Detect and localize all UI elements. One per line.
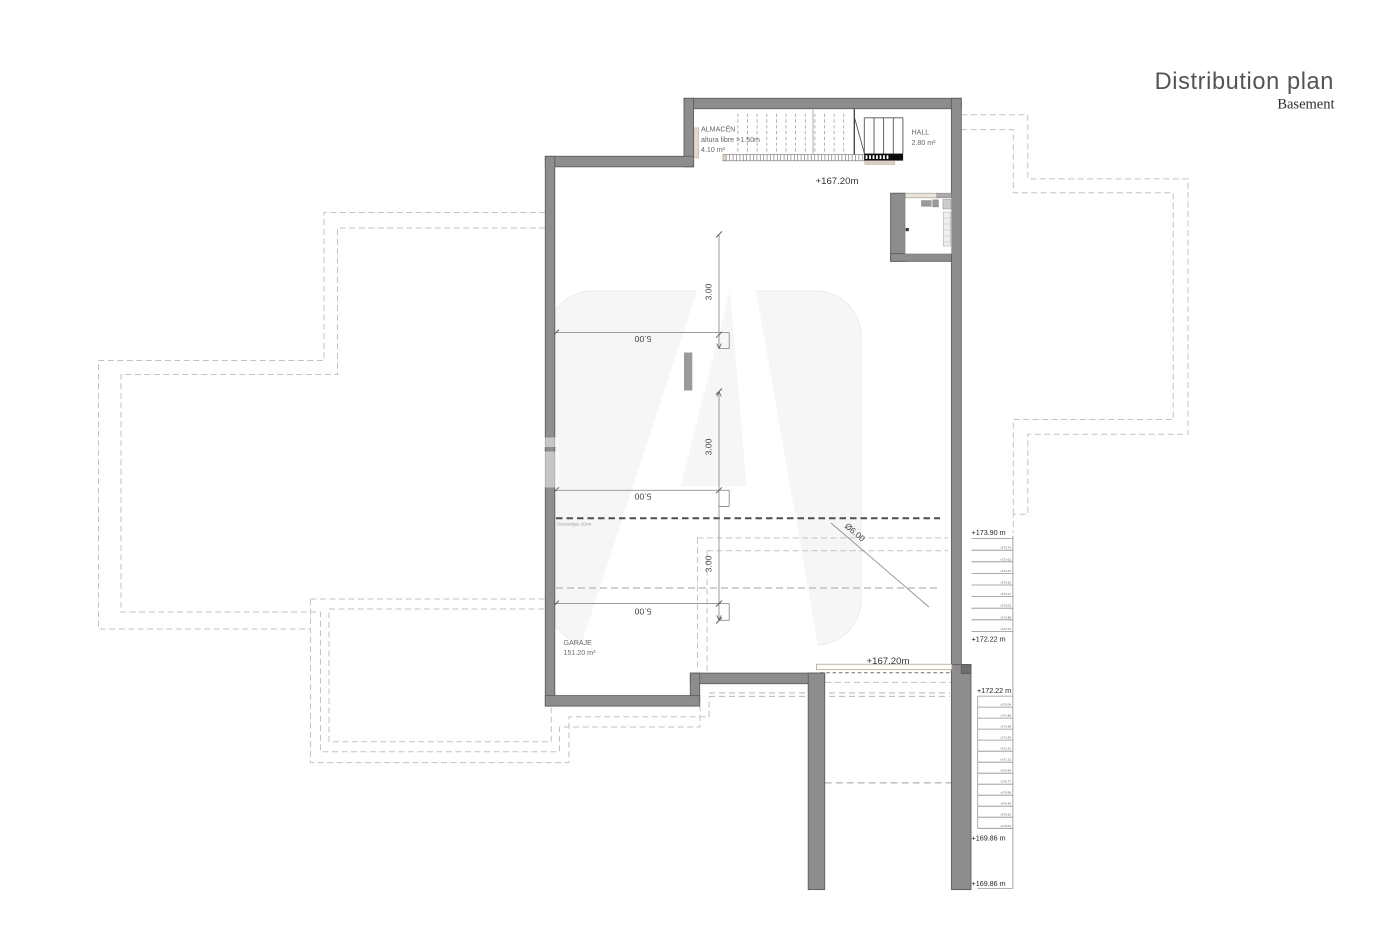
svg-text:+172.04: +172.04 (1000, 703, 1011, 707)
svg-text:5.00: 5.00 (634, 492, 651, 502)
svg-text:+172.88: +172.88 (1000, 615, 1011, 619)
svg-text:+173.32: +173.32 (1000, 581, 1011, 585)
svg-text:+172.22 m: +172.22 m (972, 635, 1006, 644)
svg-text:+173.61: +173.61 (1000, 557, 1011, 561)
svg-text:+173.90 m: +173.90 m (972, 528, 1006, 537)
svg-text:+171.68: +171.68 (1000, 725, 1011, 729)
svg-text:+170.22: +170.22 (1000, 813, 1011, 817)
svg-text:altura libre >1.50m: altura libre >1.50m (701, 136, 760, 144)
svg-text:+173.17: +173.17 (1000, 592, 1011, 596)
svg-text:+173.47: +173.47 (1000, 569, 1011, 573)
svg-text:+169.86 m: +169.86 m (972, 834, 1006, 843)
svg-text:4.10 m²: 4.10 m² (701, 146, 726, 154)
svg-text:+172.73: +172.73 (1000, 627, 1011, 631)
svg-text:+167.20m: +167.20m (816, 176, 859, 187)
svg-text:Distribution plan: Distribution plan (1155, 69, 1334, 95)
svg-text:+173.02: +173.02 (1000, 604, 1011, 608)
svg-text:+170.40: +170.40 (1000, 802, 1011, 806)
svg-text:3.00: 3.00 (704, 555, 714, 572)
svg-text:+170.58: +170.58 (1000, 791, 1011, 795)
svg-text:HALL: HALL (912, 129, 930, 137)
svg-text:3.00: 3.00 (704, 438, 714, 455)
svg-text:+173.76: +173.76 (1000, 546, 1011, 550)
svg-text:+171.86: +171.86 (1000, 714, 1011, 718)
svg-text:2.80 m²: 2.80 m² (912, 139, 937, 147)
svg-text:+170.04: +170.04 (1000, 824, 1011, 828)
svg-text:+171.50: +171.50 (1000, 736, 1011, 740)
svg-text:+172.22 m: +172.22 m (977, 686, 1011, 695)
svg-text:+171.13: +171.13 (1000, 758, 1011, 762)
svg-text:+170.77: +170.77 (1000, 780, 1011, 784)
svg-text:Descuelgue 10cm: Descuelgue 10cm (557, 522, 592, 527)
svg-text:+171.31: +171.31 (1000, 747, 1011, 751)
svg-text:5.00: 5.00 (634, 334, 651, 344)
svg-text:+169.86 m: +169.86 m (972, 879, 1006, 888)
svg-text:5.00: 5.00 (634, 607, 651, 617)
svg-text:+170.95: +170.95 (1000, 769, 1011, 773)
svg-text:151.20 m²: 151.20 m² (564, 649, 597, 657)
svg-text:+167.20m: +167.20m (867, 656, 910, 667)
svg-text:GARAJE: GARAJE (564, 639, 593, 647)
svg-text:Basement: Basement (1277, 97, 1334, 113)
svg-text:3.00: 3.00 (704, 283, 714, 300)
svg-text:ALMACÉN: ALMACÉN (701, 125, 735, 134)
